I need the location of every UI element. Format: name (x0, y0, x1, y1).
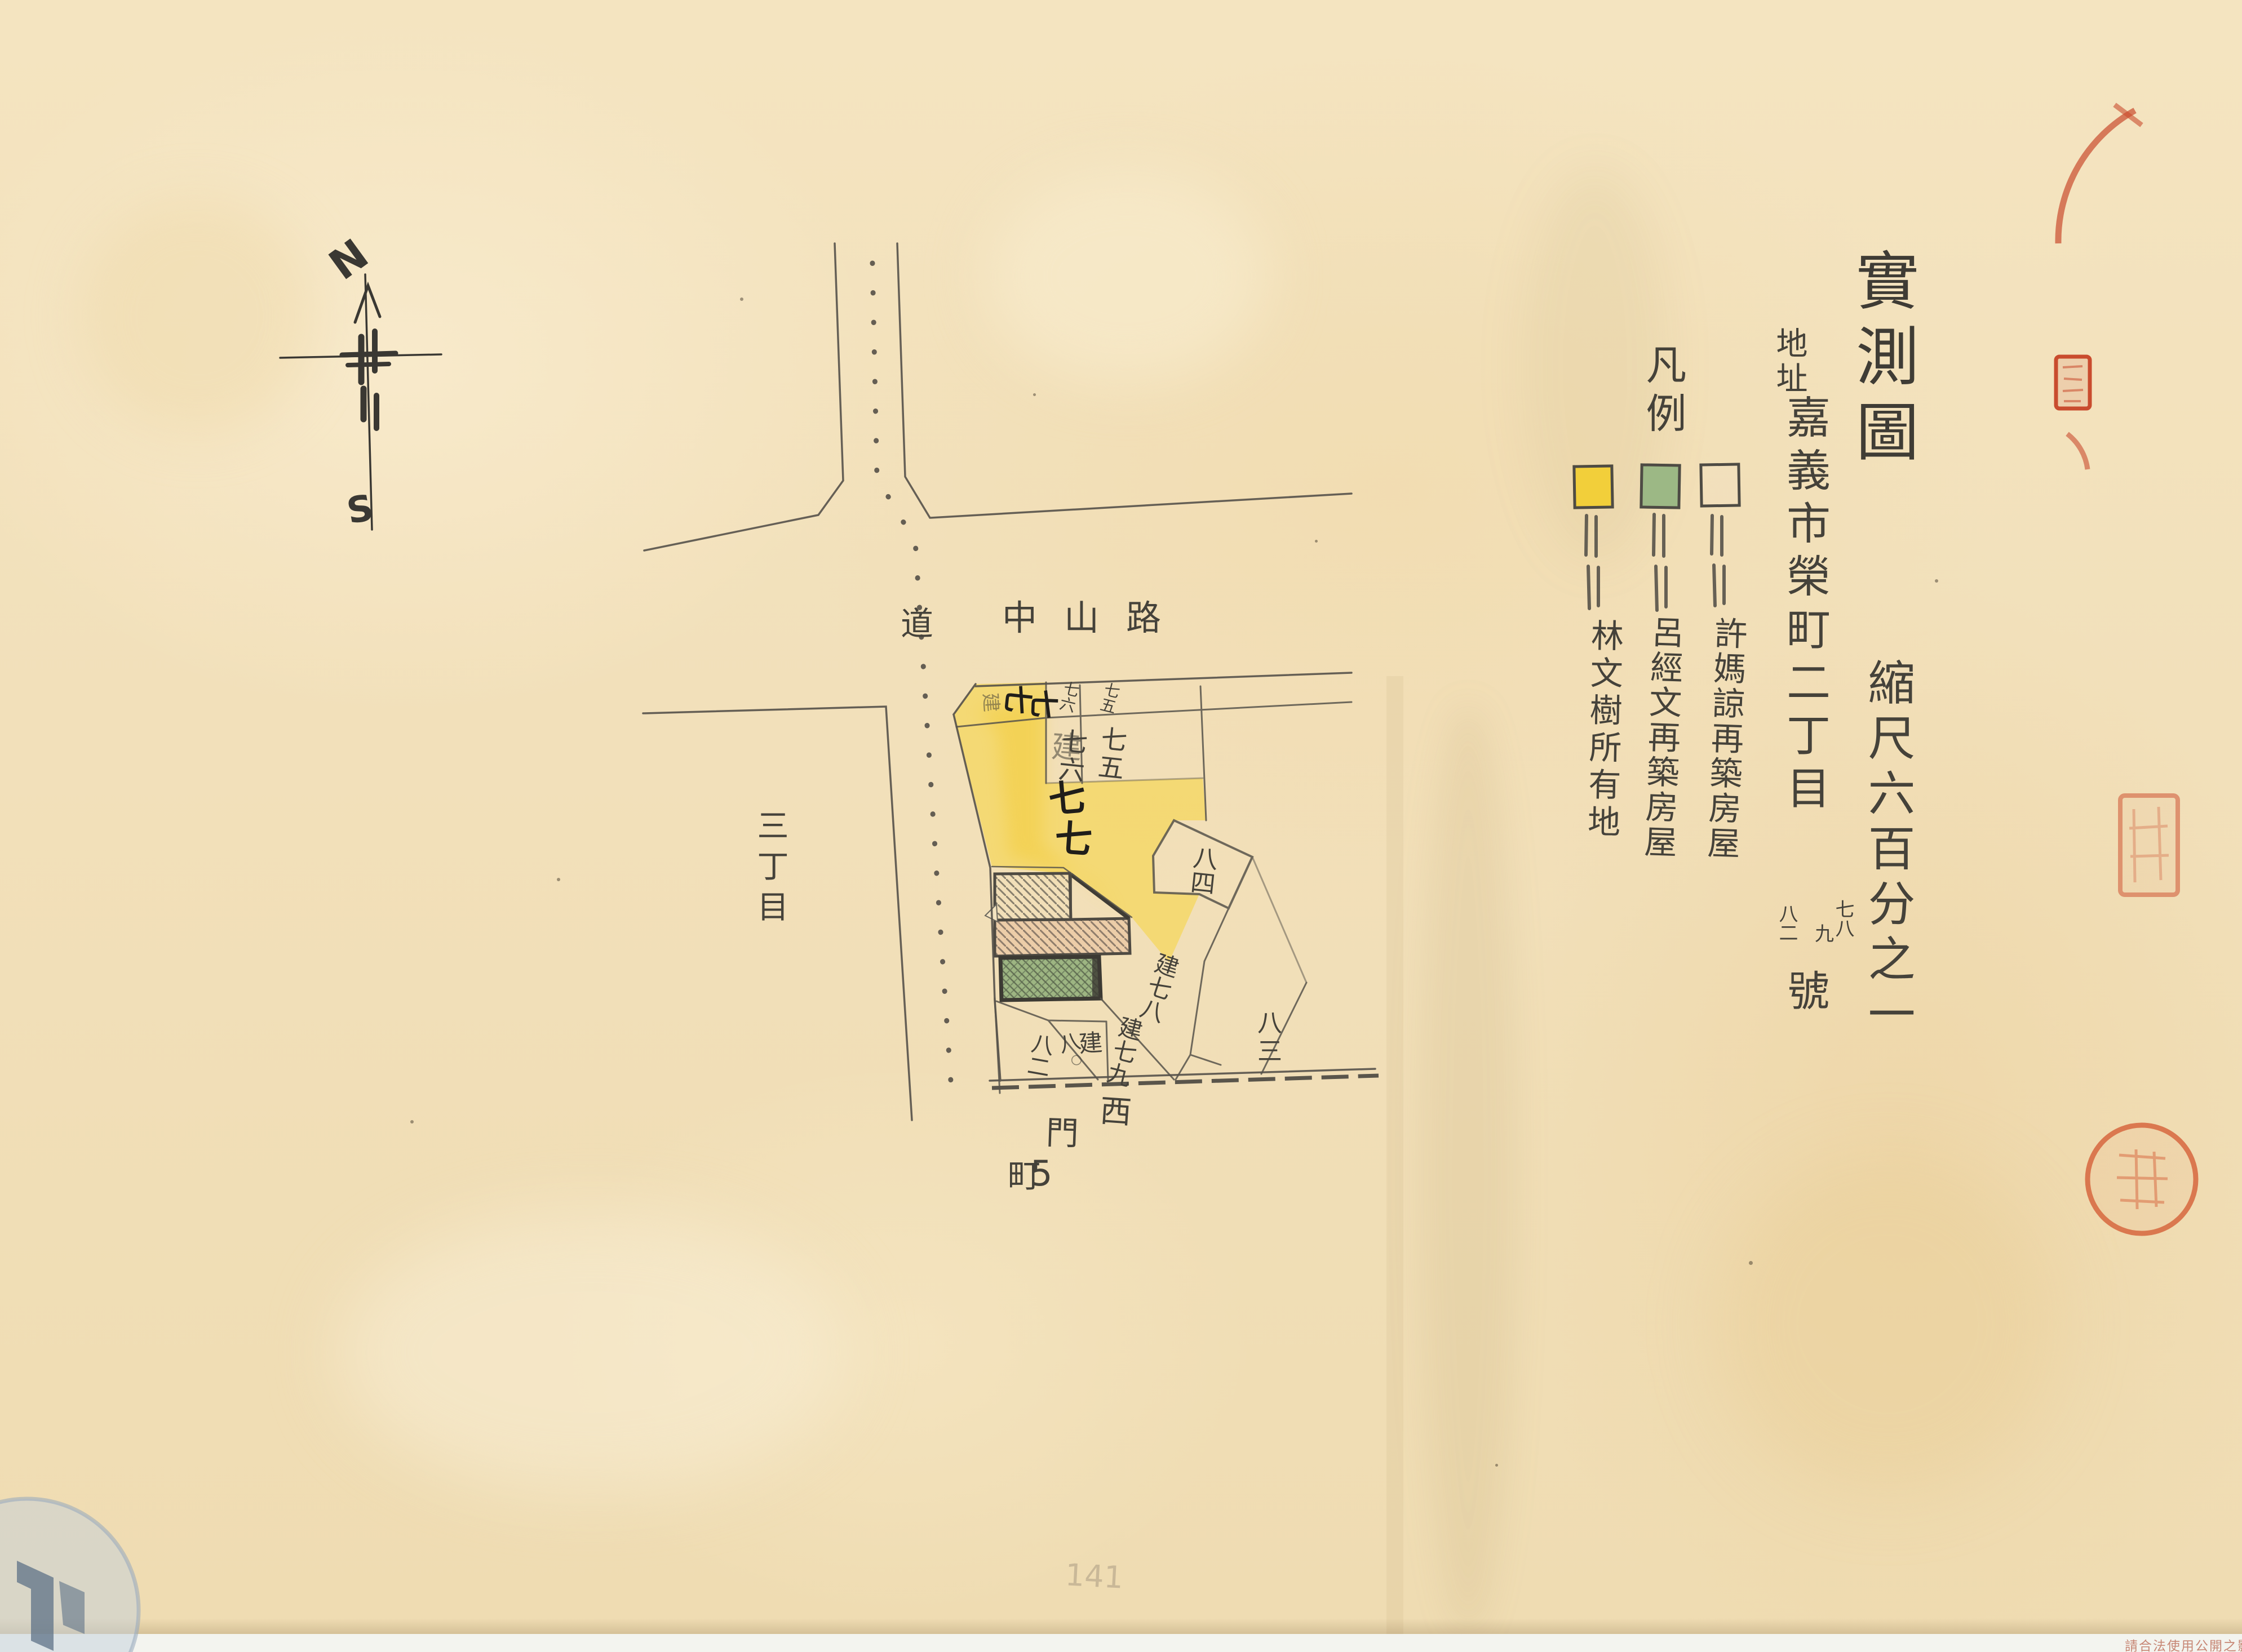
road-centerline-dots (872, 263, 952, 1098)
road-label-vertical: 道 (901, 597, 933, 645)
lot83-label: 八三 (1249, 1010, 1285, 1066)
building-green (1000, 957, 1101, 1000)
address-number-2: 九 (1815, 918, 1834, 946)
red-seals (2056, 105, 2196, 1233)
lot84-label: 八四 (1181, 843, 1222, 896)
scanned-survey-map-page: 實測圖 縮尺六百分之一 地址 嘉義市榮町二丁目 七八 九 八二 號 凡例 林文樹… (0, 0, 2242, 1652)
legend-label-white: 許媽諒再築房屋 (1696, 616, 1752, 862)
faint-pencil-number: 141 (1064, 1557, 1124, 1595)
address-main: 嘉義市榮町二丁目 (1773, 394, 1836, 818)
address-suffix: 號 (1788, 958, 1829, 1018)
seal-square (2056, 357, 2090, 408)
street-char-west: 西 (1098, 1085, 1133, 1133)
archive-watermark-logo (0, 1499, 139, 1652)
street-char-5: 5 (1030, 1153, 1052, 1194)
address-label: 地址 (1766, 327, 1812, 397)
district-label-sanchome: 三丁目 (747, 809, 793, 931)
scale-text: 縮尺六百分之一 (1854, 658, 1922, 1045)
margin-watermark-text: 請合法使用公開之影像 (2125, 1635, 2242, 1652)
road-label-zhongshan: 中山路 (1002, 589, 1188, 640)
legend-green-swatch (1640, 463, 1681, 509)
legend-label-green: 呂經文再築房屋 (1633, 615, 1689, 861)
lot75-label: 七五 (1089, 724, 1132, 784)
lot80-char-c: 〇 (1071, 1051, 1082, 1068)
building-hatched-upper (995, 873, 1071, 920)
lot76-label: 七六 (1050, 726, 1093, 786)
seal-arc-top (2058, 110, 2135, 243)
page-title: 實測圖 (1836, 248, 1928, 474)
street-char-gate: 門 (1045, 1106, 1080, 1154)
legend-yellow-swatch (1572, 464, 1614, 509)
lot77-seven-b: 七 (1053, 808, 1095, 864)
seal-rect-right (2120, 796, 2178, 895)
seal-round-bottom (2088, 1125, 2196, 1233)
legend-heading: 凡例 (1633, 344, 1692, 441)
address-number-3: 八二 (1773, 904, 1801, 942)
legend-ditto-marks (1561, 510, 1764, 617)
seal-arc-small (2067, 434, 2088, 469)
legend-white-swatch (1699, 463, 1740, 507)
legend-label-yellow: 林文樹所有地 (1578, 618, 1629, 842)
